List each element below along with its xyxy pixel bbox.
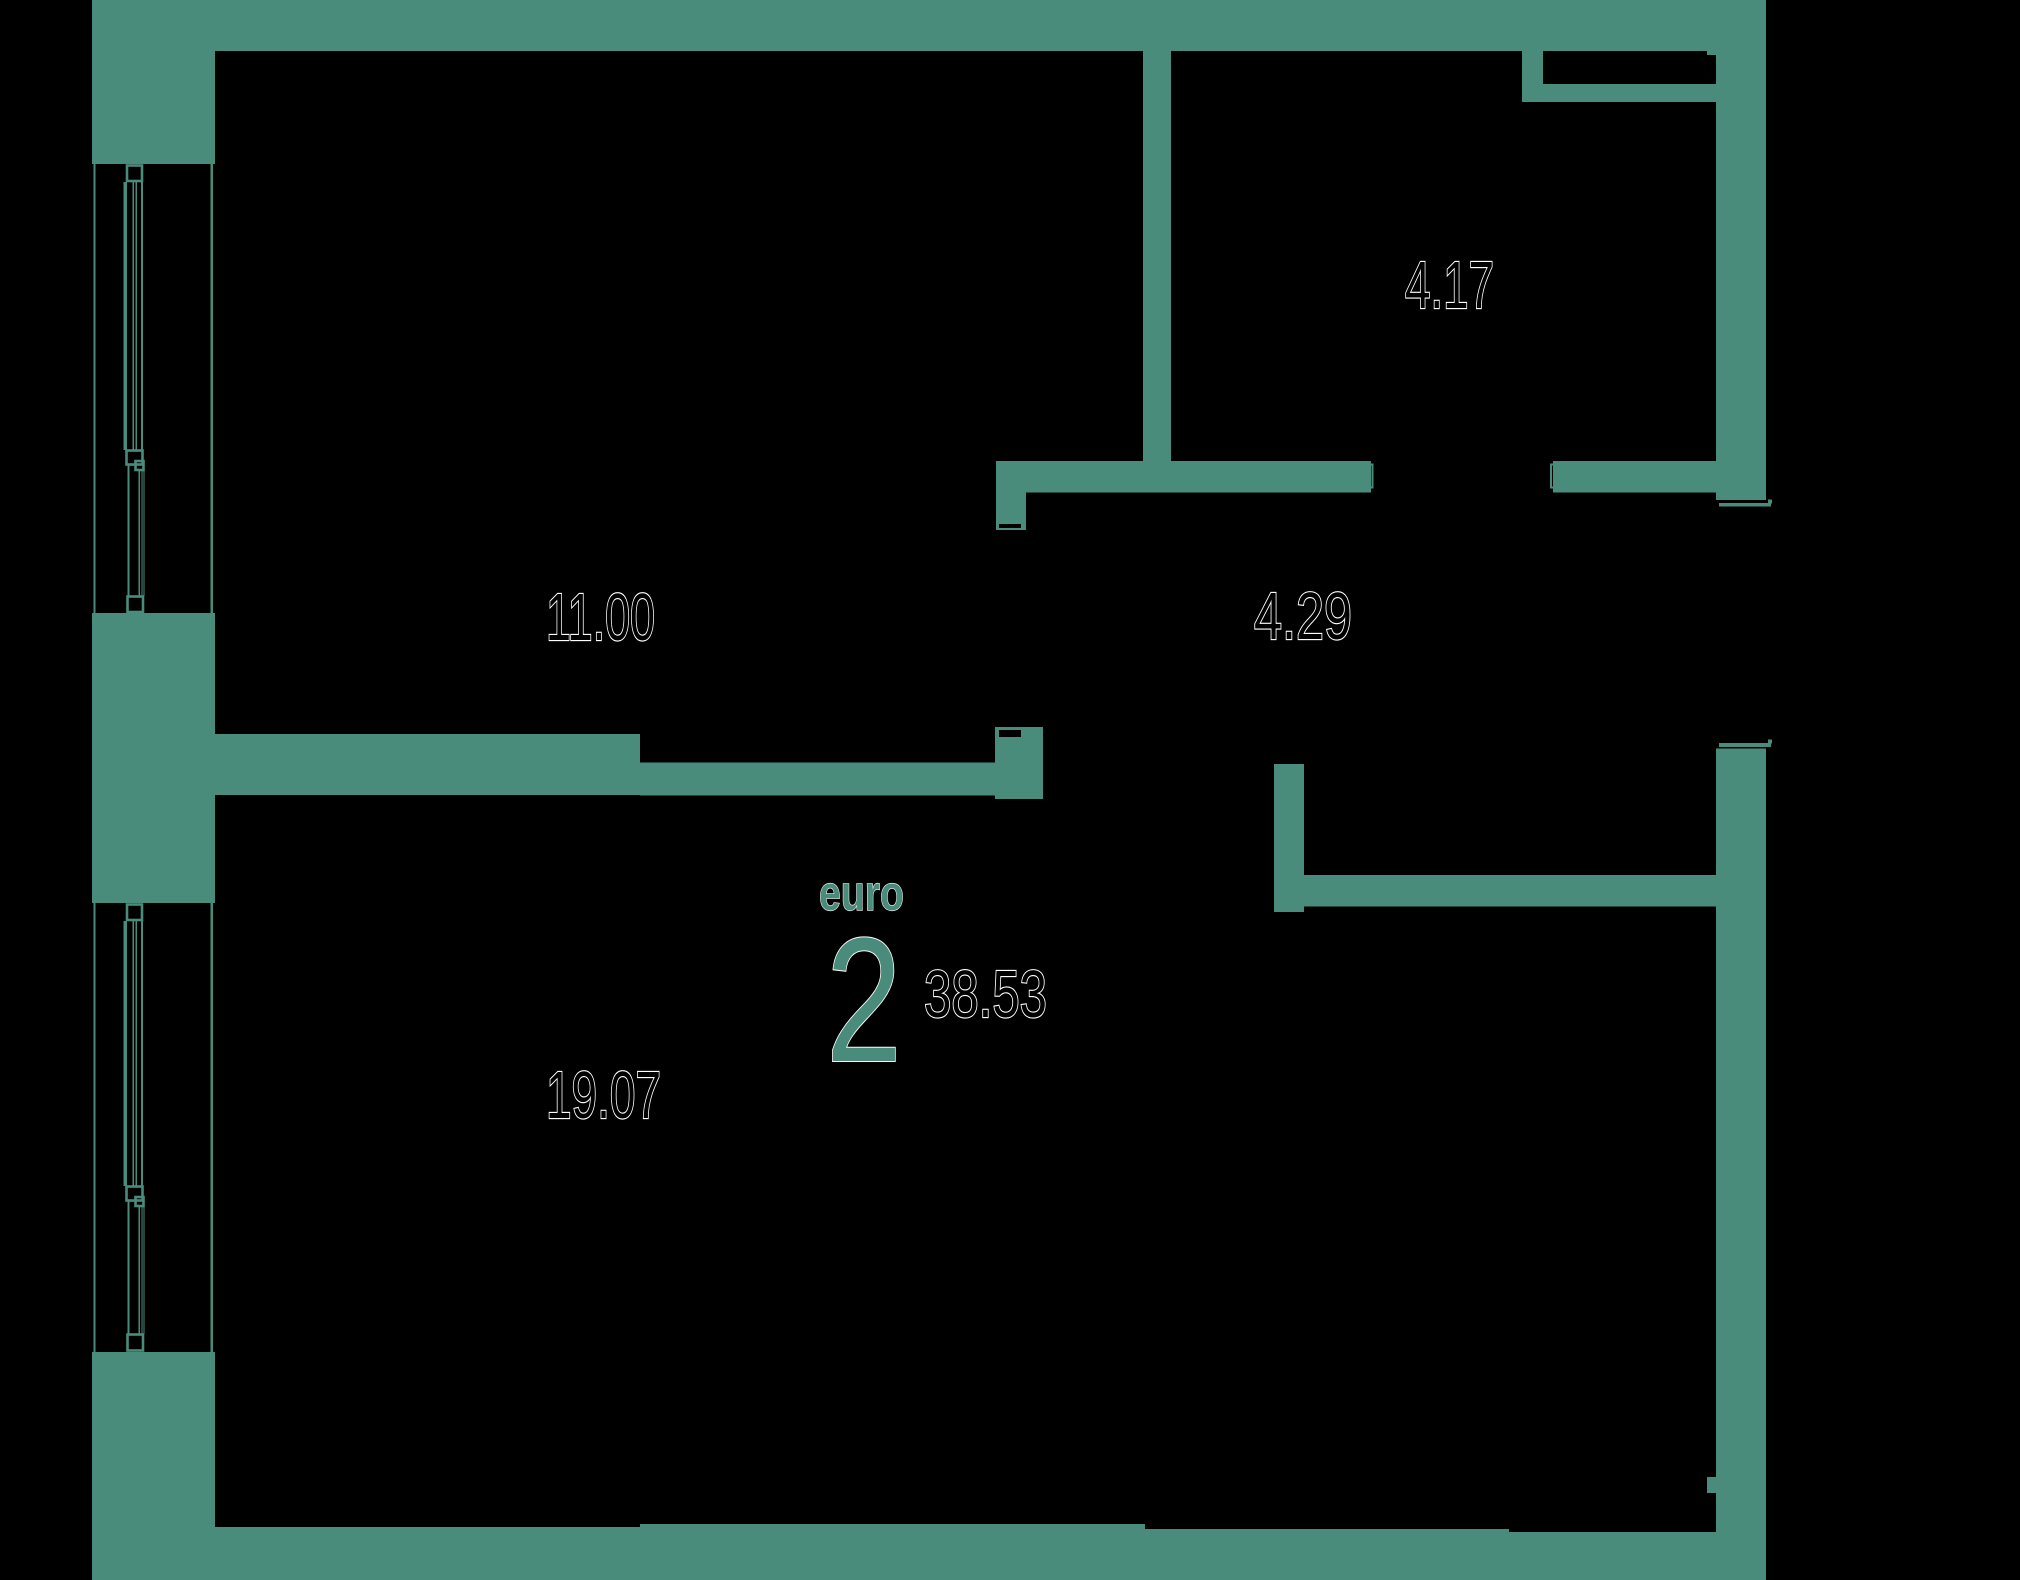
svg-text:11.00: 11.00: [546, 580, 655, 655]
svg-text:38.53: 38.53: [924, 957, 1047, 1032]
svg-text:4.29: 4.29: [1254, 579, 1352, 654]
svg-text:19.07: 19.07: [546, 1058, 661, 1133]
svg-text:2: 2: [826, 902, 902, 1099]
svg-text:4.17: 4.17: [1405, 248, 1494, 323]
